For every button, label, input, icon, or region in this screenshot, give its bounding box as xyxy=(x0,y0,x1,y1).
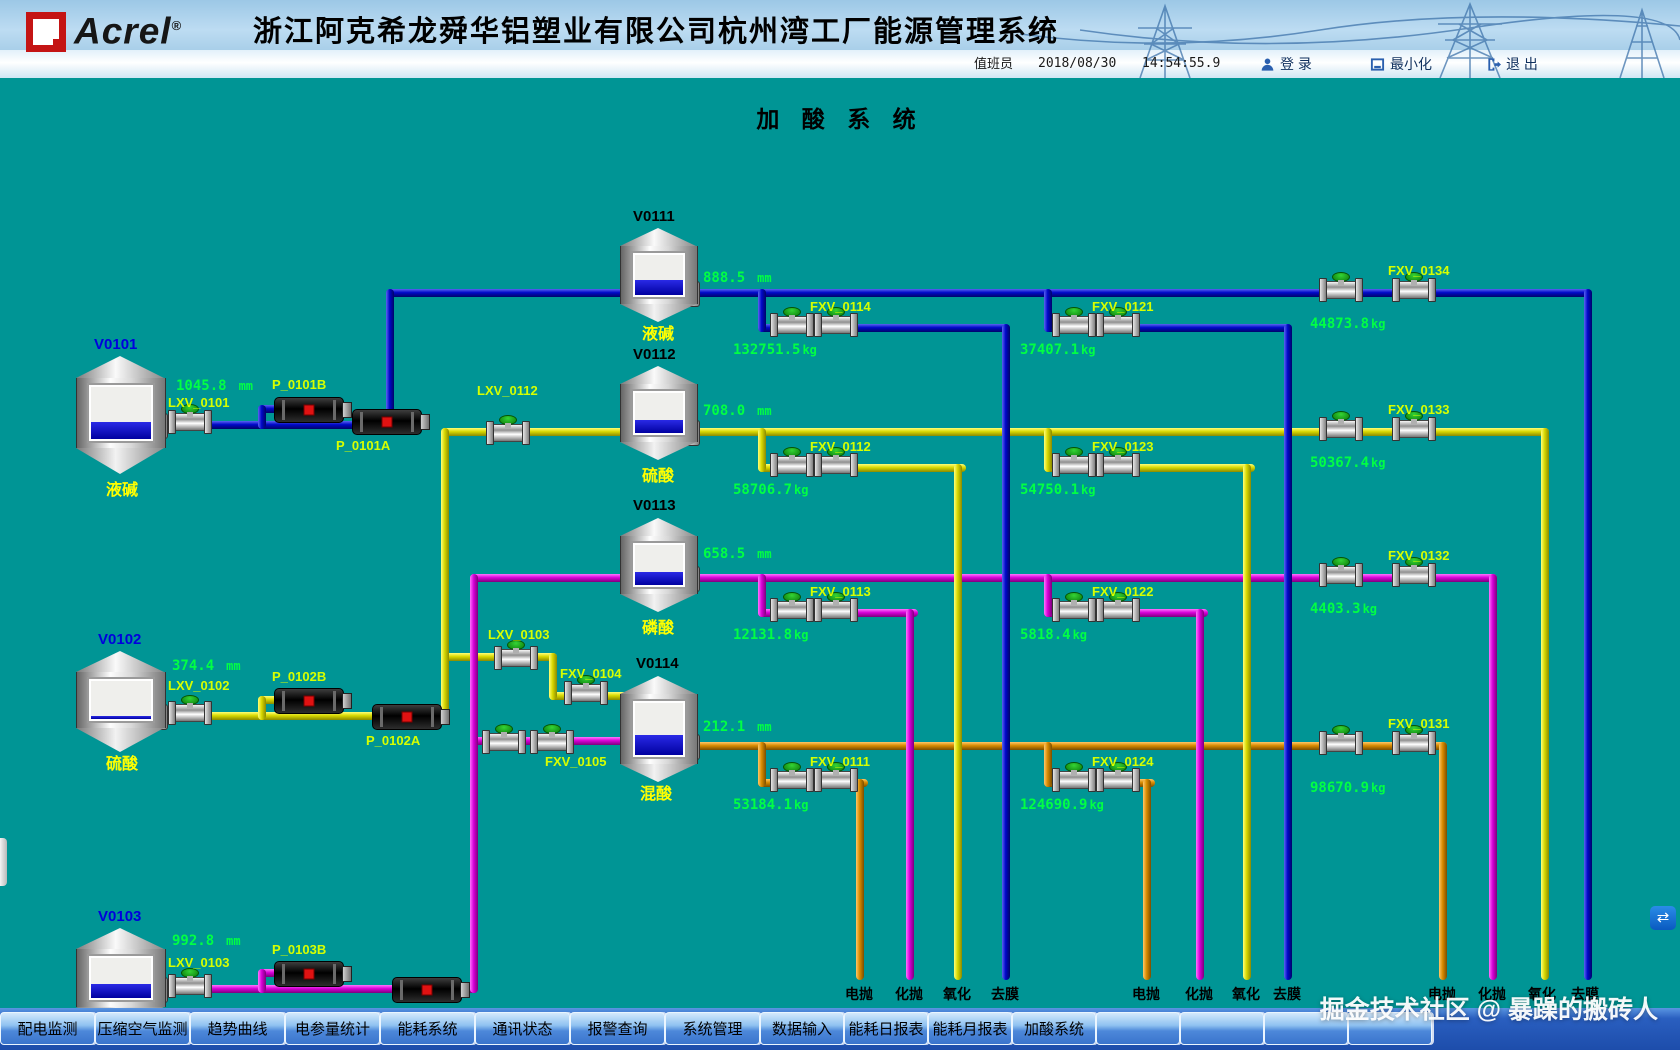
valve[interactable] xyxy=(1323,420,1359,438)
watermark-text: 掘金技术社区 @ 暴躁的搬砖人 xyxy=(1320,990,1658,1026)
level-V0102: 374.4mm xyxy=(172,658,241,674)
label-FXV_0114: FXV_0114 xyxy=(810,299,871,314)
flow-FXV_0124: 124690.9kg xyxy=(1020,797,1104,813)
pipe xyxy=(1284,324,1292,980)
pipe xyxy=(1143,779,1151,980)
pump-P_0103B[interactable] xyxy=(274,961,344,987)
valve-handle-icon xyxy=(1065,762,1083,772)
tank-V0112[interactable] xyxy=(620,366,696,460)
outlet-label: 电抛 xyxy=(845,984,873,1004)
time-display: 14:54:55.9 xyxy=(1142,50,1220,78)
tank-level-fill xyxy=(635,280,683,295)
exit-button[interactable]: 退 出 xyxy=(1486,50,1538,78)
pipe xyxy=(954,464,962,980)
outlet-label: 化抛 xyxy=(1185,984,1213,1004)
pipe xyxy=(549,653,557,700)
pipe xyxy=(258,969,266,993)
pump-P_0103A[interactable] xyxy=(392,977,462,1003)
pipe xyxy=(441,428,449,720)
pipe xyxy=(1044,289,1052,332)
outlet-label: 氧化 xyxy=(1232,984,1260,1004)
valve-FXV_0113[interactable] xyxy=(818,601,854,619)
valve-handle-icon xyxy=(495,724,513,734)
flow-FXV_0131: 98670.9kg xyxy=(1310,780,1385,796)
outlet-label: 电抛 xyxy=(1132,984,1160,1004)
valve-FXV_0131[interactable] xyxy=(1396,734,1432,752)
valve-LXV_0103[interactable] xyxy=(172,977,208,995)
label-FXV_0133: FXV_0133 xyxy=(1388,402,1449,417)
pipe xyxy=(758,742,766,787)
valve[interactable] xyxy=(1323,734,1359,752)
label-FXV_0111: FXV_0111 xyxy=(810,754,870,769)
pipe xyxy=(1584,289,1592,980)
pipe xyxy=(1541,428,1549,980)
label-FXV_0105: FXV_0105 xyxy=(545,754,606,769)
remote-arrows-icon[interactable]: ⇄ xyxy=(1650,906,1676,930)
valve-FXV_0122[interactable] xyxy=(1100,601,1136,619)
label-LXV_0102: LXV_0102 xyxy=(168,678,229,693)
label-FXV_0122: FXV_0122 xyxy=(1092,584,1153,599)
flow-FXV_0121: 37407.1kg xyxy=(1020,342,1095,358)
valve-handle-icon xyxy=(1332,725,1350,735)
nav-diancanliang[interactable]: 电参量统计 xyxy=(285,1012,380,1045)
acrel-logo: Acrel® xyxy=(26,5,182,52)
valve-handle-icon xyxy=(783,592,801,602)
pipe xyxy=(386,289,394,429)
label-FXV_0131: FXV_0131 xyxy=(1388,716,1449,731)
pipe xyxy=(758,289,766,332)
valve-handle-icon xyxy=(783,762,801,772)
pipe xyxy=(1044,742,1052,787)
pump-P_0102A[interactable] xyxy=(372,704,442,730)
pipe xyxy=(441,428,1549,436)
tank-id-V0113: V0113 xyxy=(633,497,676,514)
valve-handle-icon xyxy=(1332,411,1350,421)
valve-handle-icon xyxy=(499,415,517,425)
pipe xyxy=(1243,464,1251,980)
level-V0112: 708.0mm xyxy=(703,403,772,419)
tank-V0111[interactable] xyxy=(620,228,696,322)
tank-V0113[interactable] xyxy=(620,518,696,612)
valve-FXV_0133[interactable] xyxy=(1396,420,1432,438)
scada-screen: Acrel® 浙江阿克希龙舜华铝塑业有限公司杭州湾工厂能源管理系统 值班员 20… xyxy=(0,0,1680,1050)
operator-label: 值班员 xyxy=(974,50,1013,78)
nav-nenghaoribaobiao[interactable]: 能耗日报表 xyxy=(844,1012,928,1045)
tank-V0114[interactable] xyxy=(620,676,696,782)
label-FXV_0113: FXV_0113 xyxy=(810,584,871,599)
system-title: 浙江阿克希龙舜华铝塑业有限公司杭州湾工厂能源管理系统 xyxy=(253,8,1059,50)
pipe xyxy=(258,405,266,429)
valve-FXV_0121[interactable] xyxy=(1100,316,1136,334)
level-V0103: 992.8mm xyxy=(172,933,241,949)
valve-handle-icon xyxy=(181,695,199,705)
pipe xyxy=(856,779,864,980)
valve-handle-icon xyxy=(783,307,801,317)
login-button[interactable]: 登 录 xyxy=(1260,50,1312,78)
flow-FXV_0114: 132751.5kg xyxy=(733,342,817,358)
chem-label: 液碱 xyxy=(642,320,674,344)
pipe xyxy=(1489,574,1497,980)
pump-P_0101A[interactable] xyxy=(352,409,422,435)
level-V0101: 1045.8mm xyxy=(176,378,253,394)
label-P_0102B: P_0102B xyxy=(272,669,326,684)
level-V0111: 888.5mm xyxy=(703,270,772,286)
label-P_0103B: P_0103B xyxy=(272,942,326,957)
flow-FXV_0133: 50367.4kg xyxy=(1310,455,1385,471)
valve-handle-icon xyxy=(1065,592,1083,602)
tank-V0101[interactable] xyxy=(76,356,164,474)
valve-handle-icon xyxy=(1065,447,1083,457)
pipe xyxy=(906,609,914,980)
valve-LXV_0112[interactable] xyxy=(490,424,526,442)
chem-label: 液碱 xyxy=(106,476,138,500)
valve-FXV_0111[interactable] xyxy=(818,771,854,789)
label-LXV_0101: LXV_0101 xyxy=(168,395,229,410)
flow-FXV_0132: 4403.3kg xyxy=(1310,601,1377,617)
nav-empty-slot[interactable] xyxy=(1180,1012,1264,1045)
date-display: 2018/08/30 xyxy=(1038,50,1116,78)
tank-level-fill xyxy=(635,572,683,585)
exit-icon xyxy=(1486,57,1501,72)
valve[interactable] xyxy=(1323,281,1359,299)
label-FXV_0132: FXV_0132 xyxy=(1388,548,1449,563)
tank-id-V0112: V0112 xyxy=(633,346,676,363)
tank-id-V0114: V0114 xyxy=(636,655,679,672)
nav-empty-slot[interactable] xyxy=(1096,1012,1180,1045)
label-FXV_0123: FXV_0123 xyxy=(1092,439,1153,454)
valve-FXV_0114[interactable] xyxy=(818,316,854,334)
flow-FXV_0111: 53184.1kg xyxy=(733,797,808,813)
minimize-icon xyxy=(1370,57,1385,72)
tank-level-fill xyxy=(91,984,151,998)
valve[interactable] xyxy=(1056,601,1092,619)
flow-FXV_0122: 5818.4kg xyxy=(1020,627,1087,643)
edge-scroll-strip[interactable] xyxy=(0,838,7,886)
tank-id-V0103: V0103 xyxy=(98,908,141,925)
nav-yasuokongqi[interactable]: 压缩空气监测 xyxy=(95,1012,190,1045)
pipe xyxy=(1196,609,1204,980)
valve[interactable] xyxy=(1056,771,1092,789)
nav-baojingchaxun[interactable]: 报警查询 xyxy=(570,1012,665,1045)
valve-FXV_0134[interactable] xyxy=(1396,281,1432,299)
label-FXV_0124: FXV_0124 xyxy=(1092,754,1153,769)
nav-qushiquxian[interactable]: 趋势曲线 xyxy=(190,1012,285,1045)
outlet-label: 氧化 xyxy=(943,984,971,1004)
level-V0114: 212.1mm xyxy=(703,719,772,735)
process-canvas: 加 酸 系 统 xyxy=(0,78,1680,1008)
minimize-button[interactable]: 最小化 xyxy=(1370,50,1432,78)
acrel-logo-icon xyxy=(26,12,66,52)
valve[interactable] xyxy=(774,601,810,619)
valve-FXV_0112[interactable] xyxy=(818,456,854,474)
nav-xitongguanli[interactable]: 系统管理 xyxy=(665,1012,760,1045)
valve-LXV_0102[interactable] xyxy=(172,704,208,722)
outlet-label: 去膜 xyxy=(1273,984,1301,1004)
page-title: 加 酸 系 统 xyxy=(756,100,923,134)
valve-handle-icon xyxy=(1065,307,1083,317)
tank-level-fill xyxy=(635,735,683,755)
tank-id-V0111: V0111 xyxy=(633,208,675,225)
valve[interactable] xyxy=(774,456,810,474)
label-FXV_0112: FXV_0112 xyxy=(810,439,871,454)
valve-LXV_0101[interactable] xyxy=(172,413,208,431)
tank-V0102[interactable] xyxy=(76,651,164,752)
label-LXV_0112: LXV_0112 xyxy=(477,383,538,398)
label-P_0101B: P_0101B xyxy=(272,377,326,392)
pump-P_0102B[interactable] xyxy=(274,688,344,714)
nav-shujushuru[interactable]: 数据输入 xyxy=(760,1012,844,1045)
valve-FXV_0132[interactable] xyxy=(1396,566,1432,584)
valve[interactable] xyxy=(1056,316,1092,334)
valve-handle-icon xyxy=(783,447,801,457)
valve[interactable] xyxy=(1056,456,1092,474)
flow-FXV_0113: 12131.8kg xyxy=(733,627,808,643)
outlet-label: 化抛 xyxy=(895,984,923,1004)
valve[interactable] xyxy=(1323,566,1359,584)
label-FXV_0134: FXV_0134 xyxy=(1388,263,1449,278)
pipe xyxy=(1439,742,1447,980)
nav-nenghaoyuebaobiao[interactable]: 能耗月报表 xyxy=(928,1012,1012,1045)
valve[interactable] xyxy=(774,316,810,334)
pipe xyxy=(1044,428,1052,472)
chem-label: 硫酸 xyxy=(642,462,674,486)
valve[interactable] xyxy=(774,771,810,789)
label-FXV_0104: FXV_0104 xyxy=(560,666,621,681)
flow-FXV_0112: 58706.7kg xyxy=(733,482,808,498)
nav-nenghaoxitong[interactable]: 能耗系统 xyxy=(380,1012,475,1045)
pipe xyxy=(258,696,266,720)
chem-label: 磷酸 xyxy=(642,614,674,638)
tank-id-V0101: V0101 xyxy=(94,336,137,353)
label-P_0102A: P_0102A xyxy=(366,733,420,748)
nav-tongxunzhuangtai[interactable]: 通讯状态 xyxy=(475,1012,570,1045)
pipe xyxy=(1002,324,1010,980)
label-P_0101A: P_0101A xyxy=(336,438,390,453)
valve-FXV_0124[interactable] xyxy=(1100,771,1136,789)
pump-P_0101B[interactable] xyxy=(274,397,344,423)
chem-label: 混酸 xyxy=(640,780,672,804)
pipe xyxy=(758,574,766,617)
valve[interactable] xyxy=(486,733,522,751)
label-LXV_0103: LXV_0103 xyxy=(168,955,229,970)
pipe xyxy=(1044,574,1052,617)
user-icon xyxy=(1260,57,1275,72)
valve-handle-icon xyxy=(543,724,561,734)
nav-jiasuanxitong[interactable]: 加酸系统 xyxy=(1012,1012,1096,1045)
level-V0113: 658.5mm xyxy=(703,546,772,562)
label-LXV_0103b: LXV_0103 xyxy=(488,627,549,642)
chem-label: 硫酸 xyxy=(106,750,138,774)
nav-peidianjiance[interactable]: 配电监测 xyxy=(0,1012,95,1045)
outlet-label: 去膜 xyxy=(991,984,1019,1004)
valve-FXV_0104[interactable] xyxy=(568,684,604,702)
tank-level-fill xyxy=(91,422,151,439)
tank-id-V0102: V0102 xyxy=(98,631,141,648)
valve-FXV_0123[interactable] xyxy=(1100,456,1136,474)
valve-LXV_0103b[interactable] xyxy=(498,649,534,667)
flow-FXV_0134: 44873.8kg xyxy=(1310,316,1385,332)
valve-handle-icon xyxy=(1332,272,1350,282)
tank-level-fill xyxy=(635,420,683,433)
pipe xyxy=(758,428,766,472)
label-FXV_0121: FXV_0121 xyxy=(1092,299,1153,314)
flow-FXV_0123: 54750.1kg xyxy=(1020,482,1095,498)
tank-level-fill xyxy=(91,716,151,719)
valve-FXV_0105[interactable] xyxy=(534,733,570,751)
valve-handle-icon xyxy=(1332,557,1350,567)
pipe xyxy=(470,574,478,993)
